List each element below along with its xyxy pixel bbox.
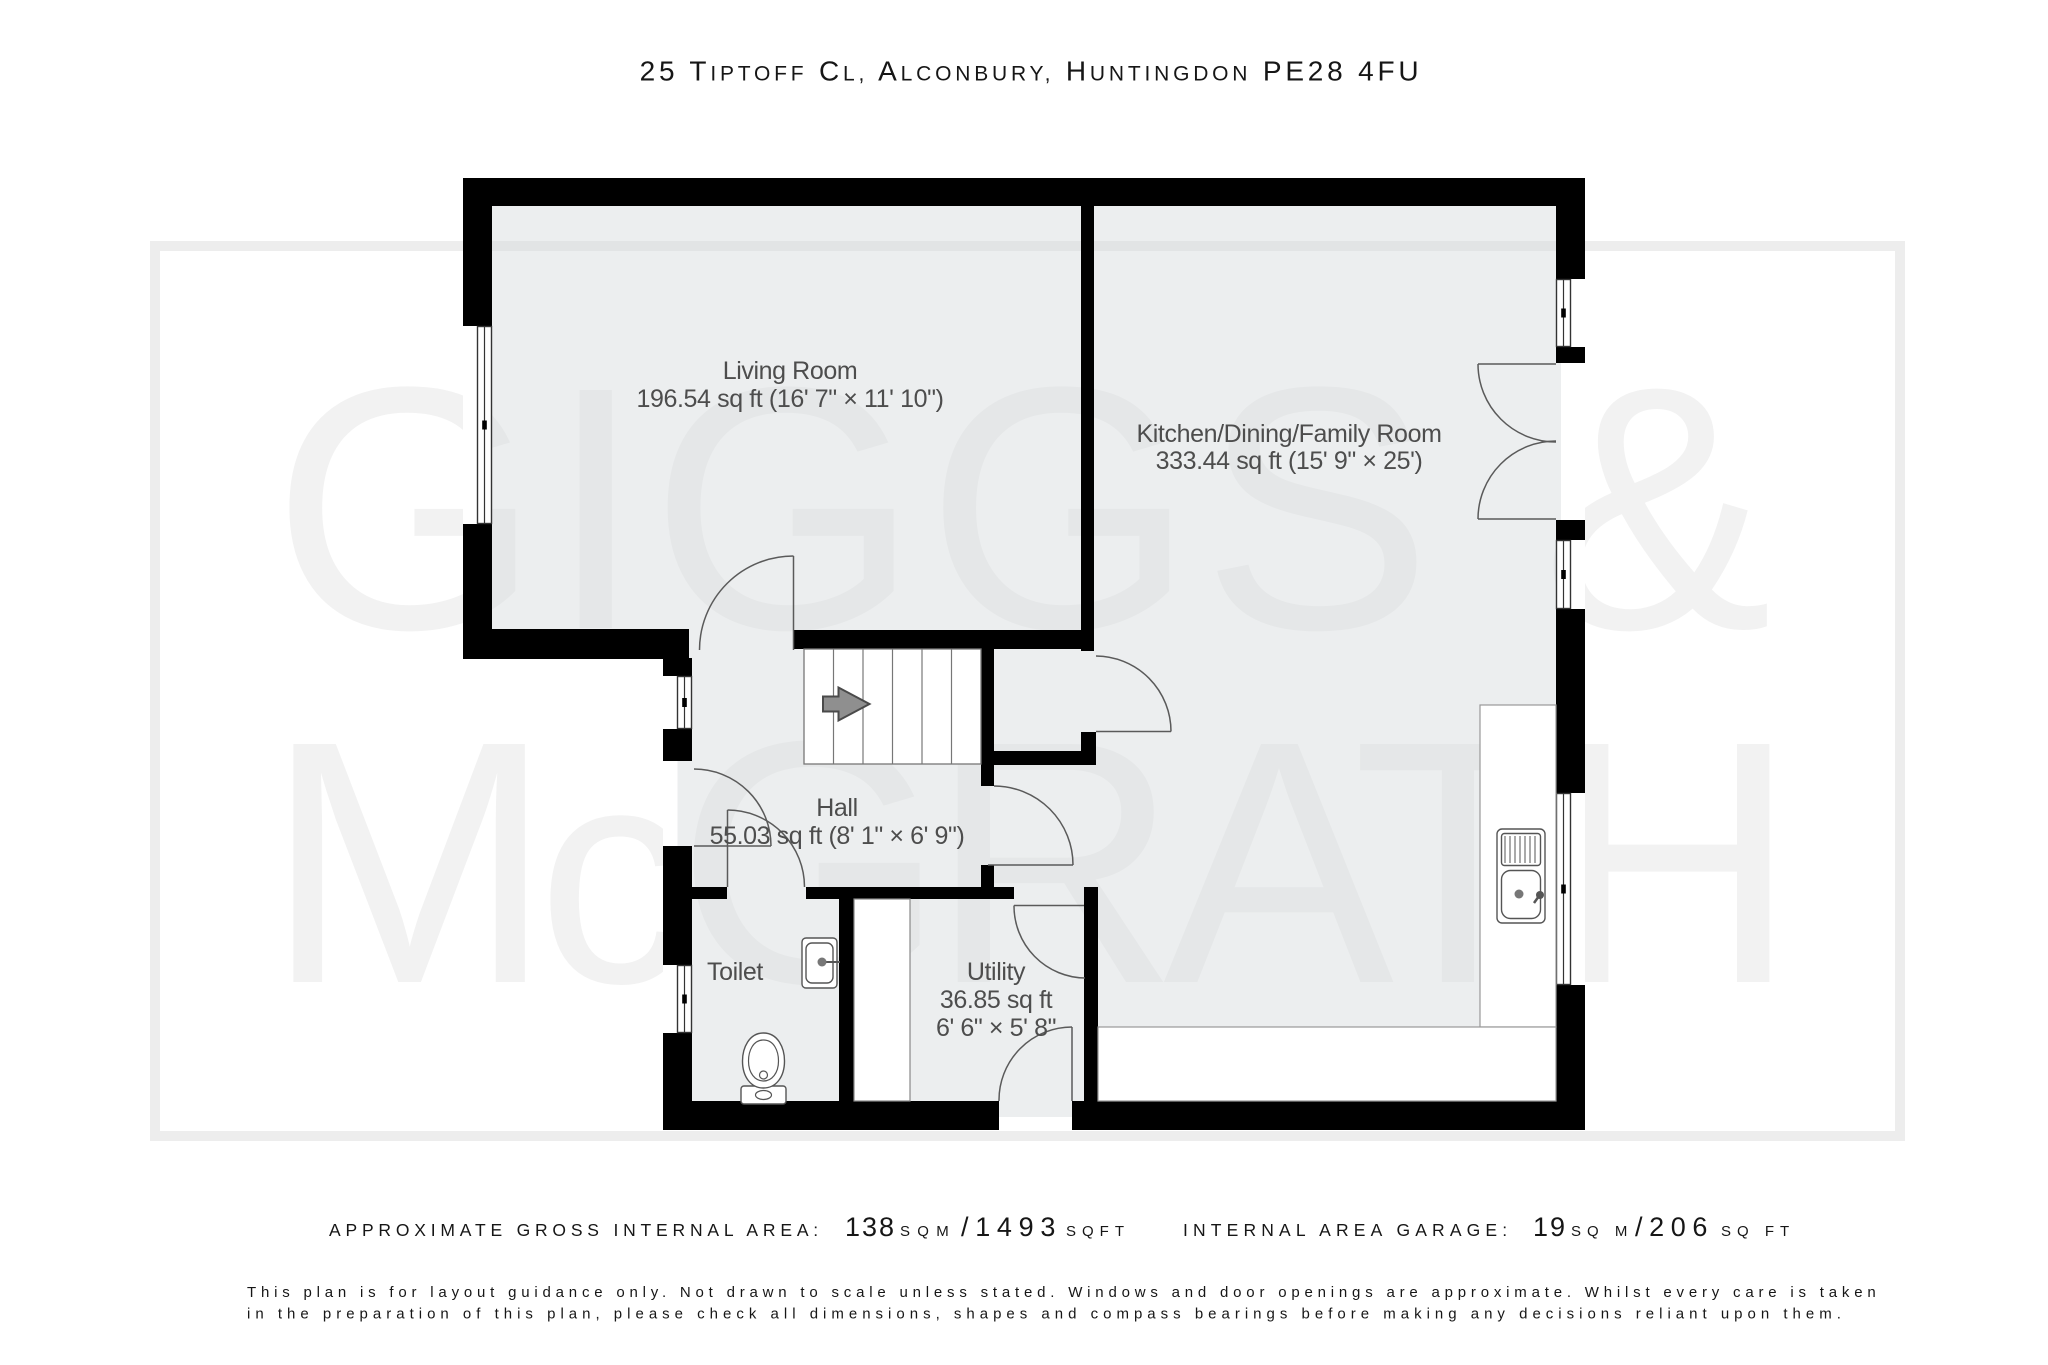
svg-text:Hall: Hall bbox=[816, 794, 857, 822]
svg-text:SQ M: SQ M bbox=[1571, 1223, 1633, 1240]
svg-text:SQM: SQM bbox=[900, 1223, 956, 1240]
svg-text:SQ FT: SQ FT bbox=[1721, 1223, 1795, 1240]
svg-text:SQFT: SQFT bbox=[1066, 1223, 1130, 1240]
svg-text:Living Room: Living Room bbox=[723, 357, 858, 385]
svg-text:Toilet: Toilet bbox=[707, 958, 763, 986]
svg-text:APPROXIMATE GROSS INTERNAL ARE: APPROXIMATE GROSS INTERNAL AREA: bbox=[329, 1220, 823, 1240]
svg-text:INTERNAL AREA GARAGE:: INTERNAL AREA GARAGE: bbox=[1183, 1220, 1512, 1240]
svg-text:/1493: /1493 bbox=[961, 1212, 1062, 1242]
svg-text:196.54 sq ft (16' 7" × 11' 10": 196.54 sq ft (16' 7" × 11' 10") bbox=[637, 385, 944, 413]
svg-text:55.03 sq ft (8' 1" × 6' 9"): 55.03 sq ft (8' 1" × 6' 9") bbox=[710, 822, 965, 850]
svg-text:333.44 sq ft (15' 9" × 25'): 333.44 sq ft (15' 9" × 25') bbox=[1156, 447, 1423, 475]
svg-text:Utility: Utility bbox=[967, 958, 1026, 986]
svg-text:36.85 sq ft: 36.85 sq ft bbox=[940, 986, 1053, 1014]
svg-text:/206: /206 bbox=[1635, 1212, 1714, 1242]
svg-text:19: 19 bbox=[1533, 1212, 1567, 1242]
svg-text:6' 6" × 5' 8": 6' 6" × 5' 8" bbox=[936, 1014, 1056, 1042]
svg-text:Kitchen/Dining/Family Room: Kitchen/Dining/Family Room bbox=[1137, 420, 1442, 448]
svg-text:138: 138 bbox=[845, 1212, 896, 1242]
svg-text:This plan is for layout guidan: This plan is for layout guidance only. N… bbox=[247, 1284, 1880, 1301]
svg-text:in the preparation of this pla: in the preparation of this plan, please … bbox=[247, 1306, 1846, 1323]
